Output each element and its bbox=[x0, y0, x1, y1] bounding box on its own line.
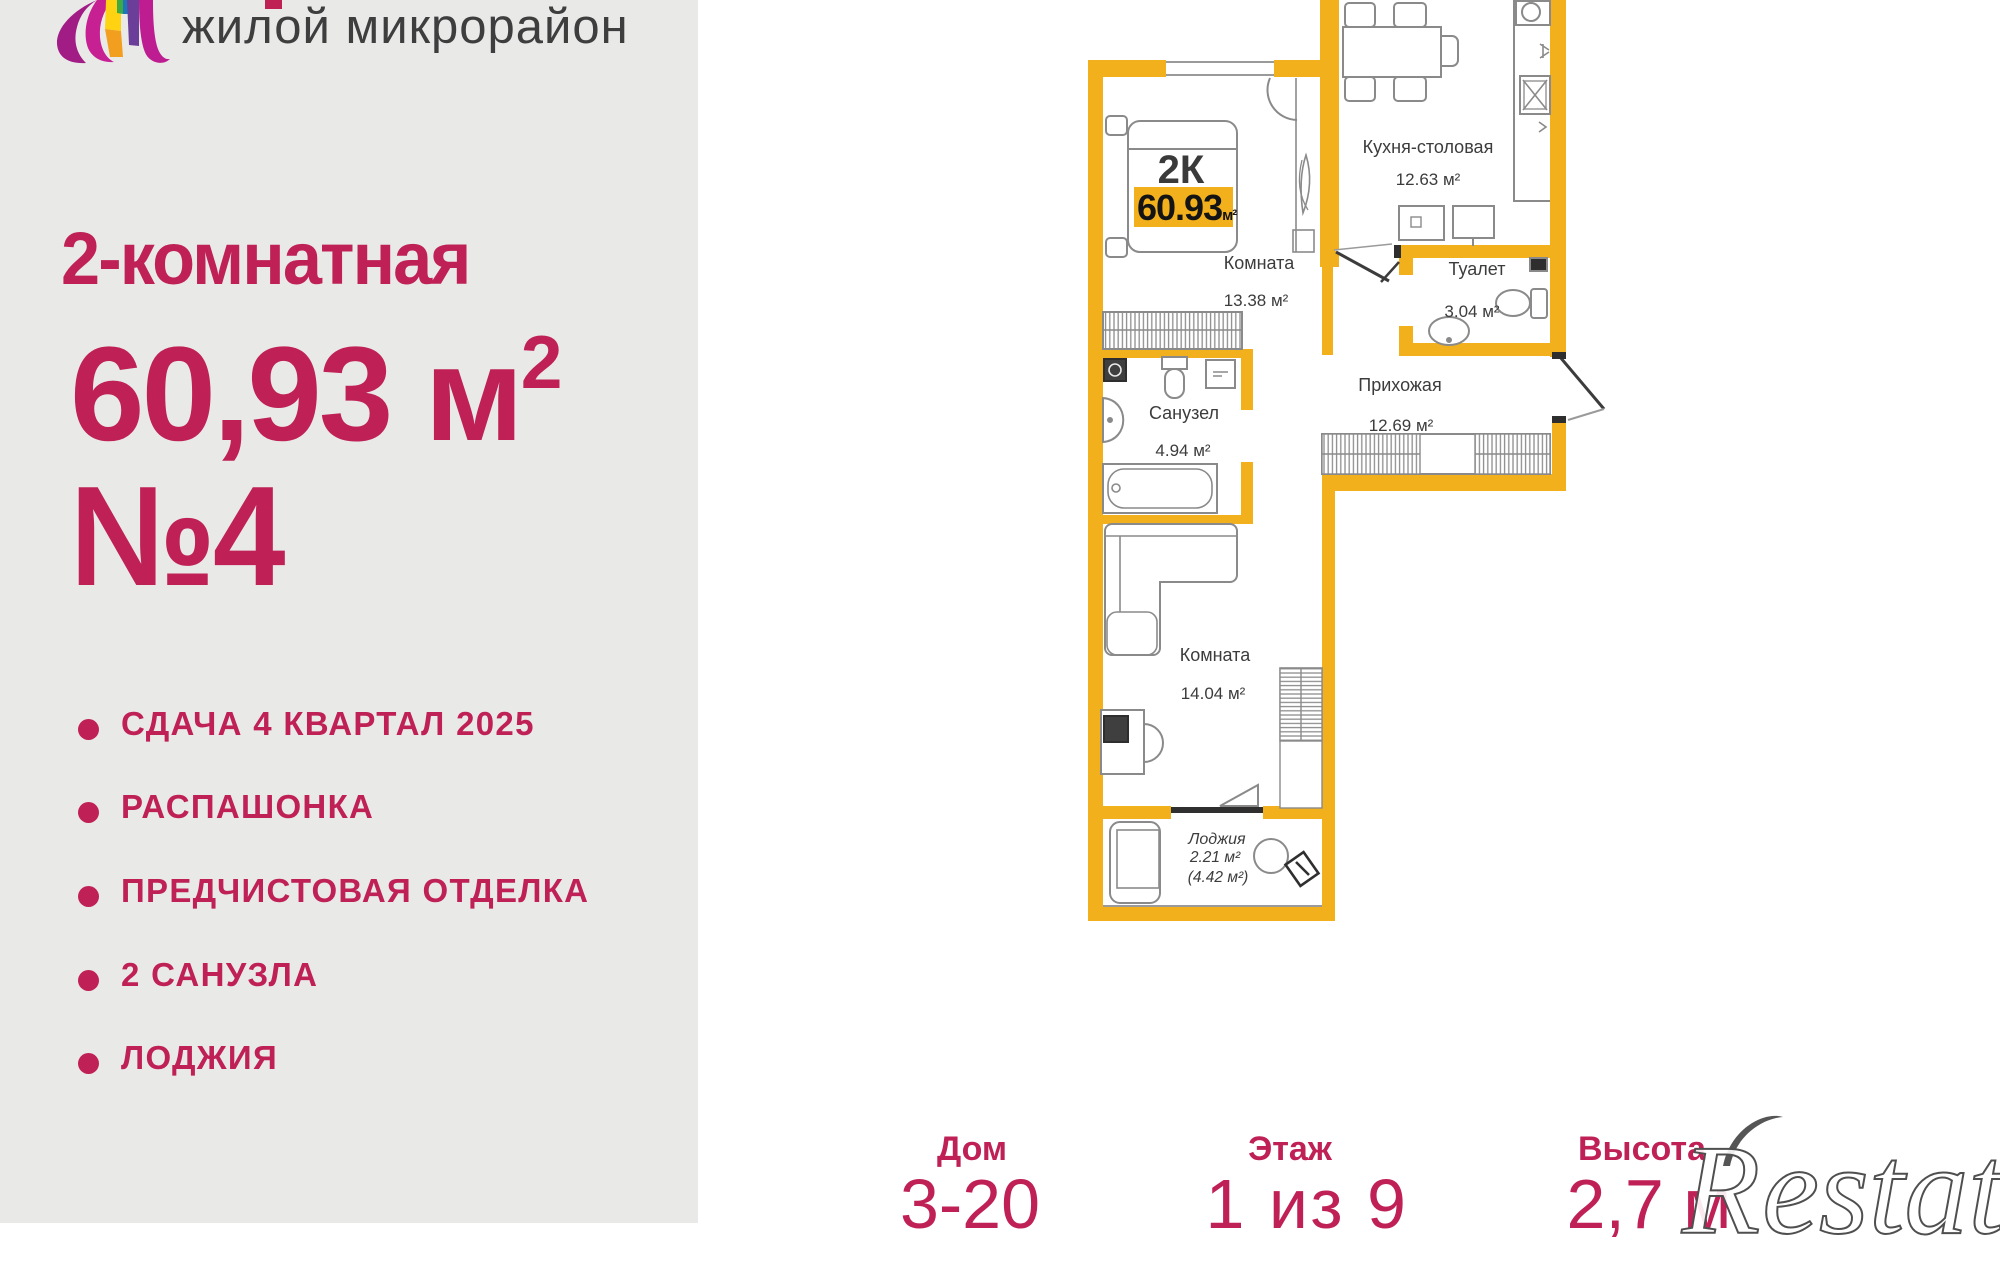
svg-text:Кухня-столовая: Кухня-столовая bbox=[1363, 137, 1494, 157]
svg-text:12.63 м²: 12.63 м² bbox=[1396, 170, 1461, 189]
svg-text:(4.42 м²): (4.42 м²) bbox=[1188, 869, 1249, 886]
svg-text:12.69 м²: 12.69 м² bbox=[1369, 416, 1434, 435]
svg-text:4.94 м²: 4.94 м² bbox=[1155, 441, 1210, 460]
svg-text:Прихожая: Прихожая bbox=[1358, 375, 1441, 395]
svg-text:13.38 м²: 13.38 м² bbox=[1224, 291, 1289, 310]
svg-text:Лоджия: Лоджия bbox=[1187, 831, 1246, 848]
svg-text:14.04 м²: 14.04 м² bbox=[1181, 684, 1246, 703]
svg-text:Комната: Комната bbox=[1224, 253, 1295, 273]
svg-text:2.21 м²: 2.21 м² bbox=[1189, 849, 1241, 866]
svg-text:Туалет: Туалет bbox=[1449, 259, 1506, 279]
svg-text:Санузел: Санузел bbox=[1149, 403, 1219, 423]
svg-text:Комната: Комната bbox=[1180, 645, 1251, 665]
svg-text:3.04 м²: 3.04 м² bbox=[1444, 302, 1499, 321]
svg-text:2К: 2К bbox=[1158, 148, 1205, 192]
